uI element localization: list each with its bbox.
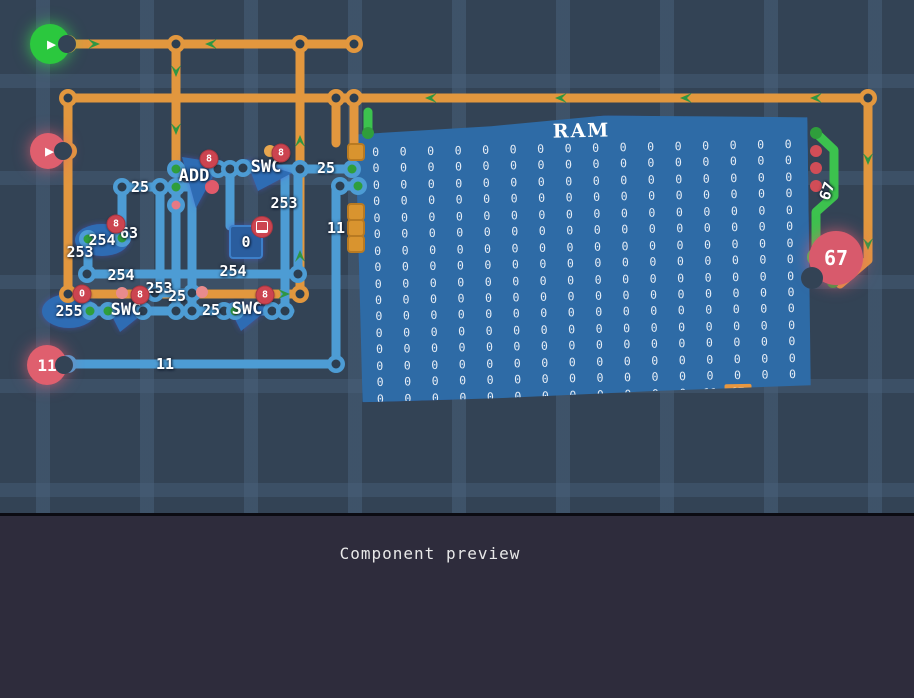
pin-icon[interactable] xyxy=(810,162,822,174)
wire-node-center xyxy=(84,235,93,244)
pin-icon[interactable] xyxy=(205,180,219,194)
wire-node-center xyxy=(172,40,181,49)
register-badge-icon xyxy=(251,216,273,238)
output-value-label: 67 xyxy=(824,246,848,270)
wire-node-center xyxy=(139,307,148,316)
pin-icon[interactable] xyxy=(362,127,374,139)
wire-node-center xyxy=(348,165,357,174)
wire-node-center xyxy=(172,307,181,316)
wire-node-center xyxy=(118,183,127,192)
pin-icon[interactable] xyxy=(810,180,822,192)
pin-icon[interactable] xyxy=(196,286,208,298)
pin-icon[interactable] xyxy=(810,145,822,157)
ram-input-pin[interactable] xyxy=(348,220,364,236)
wire-node-center xyxy=(864,94,873,103)
wire-node-center xyxy=(104,307,113,316)
wire-node-center xyxy=(296,40,305,49)
wire-node-center xyxy=(268,307,277,316)
wire-node-center xyxy=(336,182,345,191)
wire-node-center xyxy=(350,94,359,103)
circuit-canvas[interactable]: RAM 000000000000000000000000000000000000… xyxy=(0,0,914,513)
game-window: RAM 000000000000000000000000000000000000… xyxy=(0,0,914,698)
wire-node-center xyxy=(64,290,73,299)
bitwidth-badge: 8 xyxy=(131,286,150,305)
wire-node-center xyxy=(239,164,248,173)
bitwidth-badge: 8 xyxy=(256,286,275,305)
output-value-node[interactable]: 67 xyxy=(809,231,863,285)
wire-node-center xyxy=(156,183,165,192)
wire-node-center xyxy=(118,234,127,243)
component-preview-panel: Component preview POPPUSHVALUE 0 OUTPUT xyxy=(0,516,914,698)
input-value-label: 11 xyxy=(37,356,56,375)
ram-input-pin[interactable] xyxy=(348,144,364,160)
start-pin-notch xyxy=(58,35,76,53)
wire-node-center xyxy=(172,183,181,192)
wire-node-center xyxy=(172,165,181,174)
wire-node-center xyxy=(83,270,92,279)
wire-node-center xyxy=(281,307,290,316)
wire-node-center xyxy=(296,290,305,299)
play-icon: ▶ xyxy=(47,37,56,52)
ram-input-pin[interactable] xyxy=(348,204,364,220)
pin-notch xyxy=(801,267,823,289)
wire-node-center xyxy=(354,182,363,191)
bitwidth-badge: 8 xyxy=(272,144,291,163)
wire-node-center xyxy=(231,307,240,316)
wire-node-center xyxy=(151,289,160,298)
wire-layer[interactable] xyxy=(0,0,914,513)
play-icon: ▶ xyxy=(45,144,54,159)
wire-node-center xyxy=(188,289,197,298)
monitor-icon xyxy=(256,221,268,233)
ram-input-pin[interactable] xyxy=(348,236,364,252)
bitwidth-badge: 8 xyxy=(107,215,126,234)
bitwidth-badge: 8 xyxy=(200,150,219,169)
input-value-node[interactable]: 11 xyxy=(27,345,67,385)
wire-node-center xyxy=(350,40,359,49)
wire-node-center xyxy=(296,165,305,174)
pin-notch xyxy=(55,356,73,374)
pin-icon[interactable] xyxy=(116,287,128,299)
start-button[interactable]: ▶ xyxy=(30,24,70,64)
wire-node-center xyxy=(294,270,303,279)
wire-node-center xyxy=(332,94,341,103)
wire-node-center xyxy=(86,307,95,316)
wire-node-center xyxy=(226,165,235,174)
wire-node-center xyxy=(188,307,197,316)
panel-title: Component preview xyxy=(0,544,860,563)
pin-icon[interactable] xyxy=(810,127,822,139)
wire-node-center xyxy=(332,360,341,369)
wire-node-center xyxy=(64,94,73,103)
bitwidth-badge: 0 xyxy=(73,285,92,304)
wire-node-center xyxy=(172,201,181,210)
pin-notch xyxy=(54,142,72,160)
secondary-play-node[interactable]: ▶ xyxy=(30,133,66,169)
